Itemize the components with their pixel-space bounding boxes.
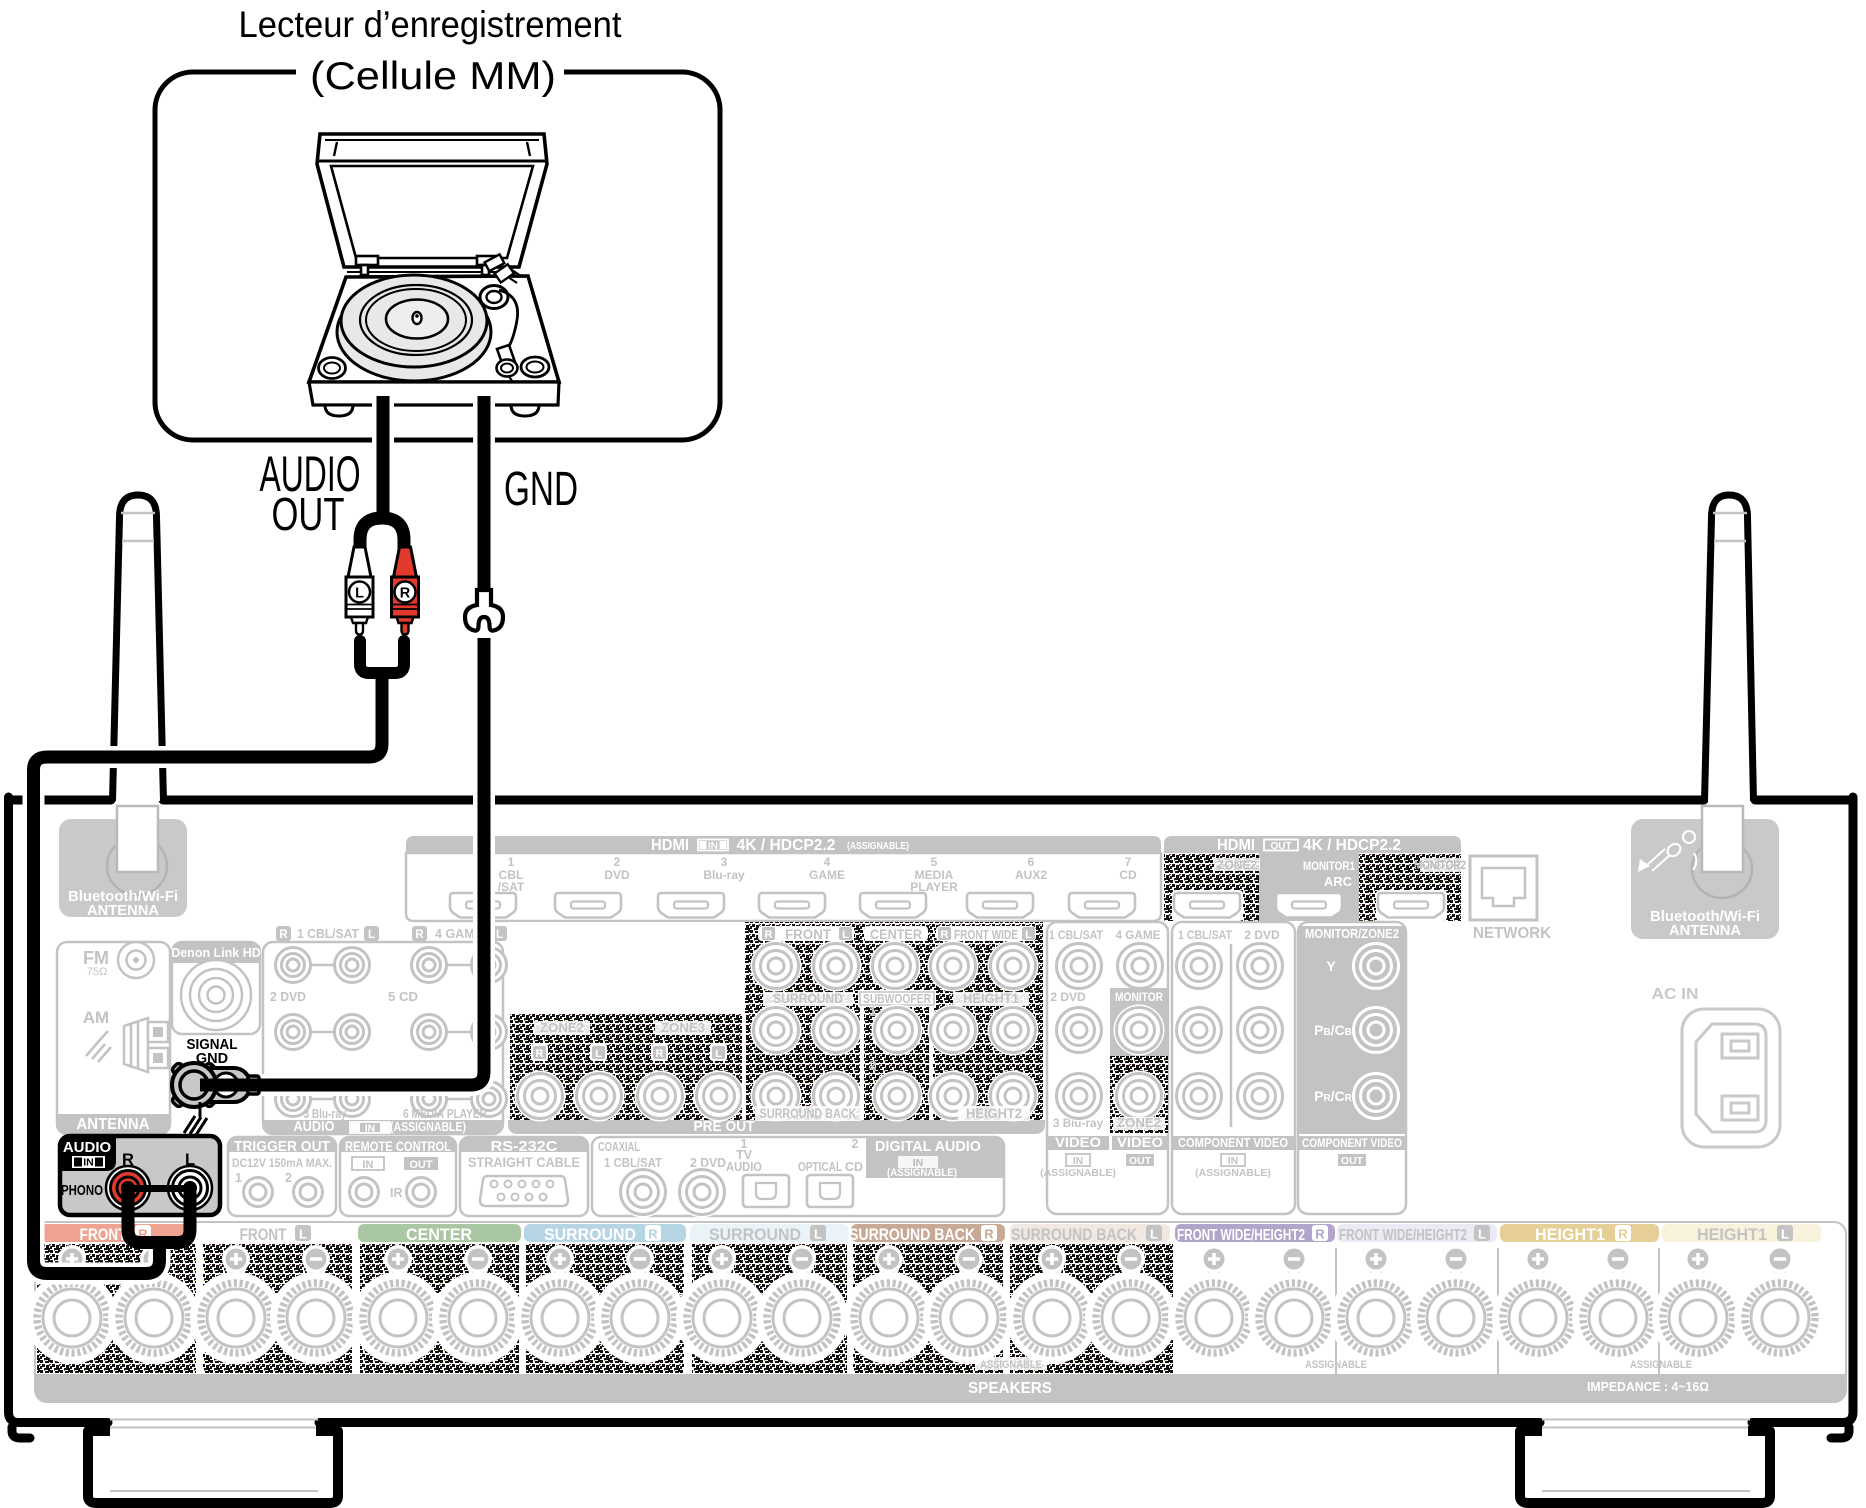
svg-text:FRONT: FRONT <box>785 927 832 942</box>
svg-text:Y: Y <box>1326 958 1336 974</box>
svg-text:IN: IN <box>365 1123 376 1135</box>
svg-text:4: 4 <box>824 855 831 869</box>
svg-text:L: L <box>595 1048 602 1060</box>
svg-text:OPTICAL: OPTICAL <box>798 1160 842 1174</box>
svg-text:VIDEO: VIDEO <box>1117 1134 1163 1150</box>
svg-text:OUT: OUT <box>1341 1155 1364 1167</box>
svg-text:GND: GND <box>504 463 578 516</box>
svg-text:5: 5 <box>931 855 938 869</box>
svg-text:6: 6 <box>1028 855 1035 869</box>
svg-text:HEIGHT2: HEIGHT2 <box>966 1106 1022 1121</box>
svg-text:ASSIGNABLE: ASSIGNABLE <box>980 1359 1042 1371</box>
svg-text:SURROUND: SURROUND <box>709 1225 801 1244</box>
svg-text:REMOTE CONTROL: REMOTE CONTROL <box>345 1139 451 1154</box>
svg-text:OUT: OUT <box>1129 1155 1152 1167</box>
svg-text:ZONE2: ZONE2 <box>1117 1115 1161 1130</box>
svg-text:DIGITAL AUDIO: DIGITAL AUDIO <box>875 1138 981 1155</box>
svg-text:2: 2 <box>869 1058 877 1073</box>
svg-text:R: R <box>279 929 288 941</box>
svg-text:COAXIAL: COAXIAL <box>598 1140 640 1154</box>
svg-text:(ASSIGNABLE): (ASSIGNABLE) <box>887 1167 957 1179</box>
svg-text:2: 2 <box>852 1137 859 1151</box>
svg-text:L: L <box>496 929 503 941</box>
svg-text:SPEAKERS: SPEAKERS <box>968 1380 1052 1397</box>
svg-text:DC12V 150mA MAX.: DC12V 150mA MAX. <box>232 1156 332 1170</box>
svg-text:AUDIO: AUDIO <box>726 1160 762 1174</box>
svg-text:(ASSIGNABLE): (ASSIGNABLE) <box>390 1119 466 1134</box>
svg-text:CD: CD <box>845 1160 863 1174</box>
svg-text:IMPEDANCE : 4~16Ω: IMPEDANCE : 4~16Ω <box>1587 1379 1709 1394</box>
svg-text:SURROUND BACK: SURROUND BACK <box>1011 1225 1138 1244</box>
svg-text:2: 2 <box>285 1171 292 1185</box>
svg-text:L: L <box>299 1227 307 1242</box>
svg-text:L: L <box>1781 1227 1789 1242</box>
svg-text:IN: IN <box>1073 1155 1084 1167</box>
svg-text:(ASSIGNABLE): (ASSIGNABLE) <box>1195 1167 1271 1179</box>
svg-text:7: 7 <box>1125 855 1132 869</box>
svg-text:R: R <box>656 1048 664 1060</box>
svg-text:L: L <box>842 929 849 941</box>
svg-text:IR: IR <box>390 1186 403 1200</box>
svg-text:R: R <box>941 929 949 941</box>
svg-text:IN: IN <box>363 1159 374 1171</box>
svg-text:75Ω: 75Ω <box>87 966 107 978</box>
svg-text:1: 1 <box>235 1171 242 1185</box>
svg-text:MONITOR/ZONE2: MONITOR/ZONE2 <box>1305 927 1399 941</box>
svg-text:IN: IN <box>708 841 718 852</box>
svg-text:MONITOR: MONITOR <box>1115 992 1164 1004</box>
svg-text:2 DVD: 2 DVD <box>1244 928 1280 942</box>
svg-text:SURROUND BACK: SURROUND BACK <box>849 1225 976 1244</box>
svg-text:4 GAME: 4 GAME <box>1116 928 1161 942</box>
svg-text:2 DVD: 2 DVD <box>270 990 306 1004</box>
svg-text:1: 1 <box>508 855 515 869</box>
svg-text:FRONT WIDE: FRONT WIDE <box>954 927 1018 942</box>
svg-text:CD: CD <box>1119 868 1137 882</box>
svg-text:1 CBL/SAT: 1 CBL/SAT <box>1049 928 1104 942</box>
svg-text:FRONT: FRONT <box>240 1225 287 1244</box>
svg-text:FRONT WIDE/HEIGHT2: FRONT WIDE/HEIGHT2 <box>1339 1227 1467 1244</box>
svg-text:R: R <box>1618 1227 1628 1242</box>
svg-text:ZONE3: ZONE3 <box>661 1020 705 1035</box>
svg-text:TRIGGER OUT: TRIGGER OUT <box>234 1139 330 1155</box>
svg-text:R: R <box>984 1227 994 1242</box>
svg-text:R: R <box>765 929 773 941</box>
svg-text:HEIGHT1: HEIGHT1 <box>963 991 1019 1006</box>
svg-text:1 CBL/SAT: 1 CBL/SAT <box>604 1156 662 1170</box>
svg-text:2: 2 <box>614 855 621 869</box>
svg-text:STRAIGHT CABLE: STRAIGHT CABLE <box>468 1155 580 1170</box>
svg-text:NETWORK: NETWORK <box>1473 925 1552 942</box>
svg-text:Denon Link HD: Denon Link HD <box>171 946 261 960</box>
svg-text:L: L <box>368 929 375 941</box>
svg-text:ANTENNA: ANTENNA <box>1669 923 1742 939</box>
svg-text:L: L <box>1025 929 1032 941</box>
svg-text:HDMI: HDMI <box>1217 837 1255 854</box>
svg-text:COMPONENT VIDEO: COMPONENT VIDEO <box>1178 1136 1288 1150</box>
svg-text:IN: IN <box>1228 1155 1239 1167</box>
svg-text:R: R <box>648 1227 658 1242</box>
svg-text:2 DVD: 2 DVD <box>1050 990 1086 1004</box>
svg-text:ZONE2: ZONE2 <box>540 1020 584 1035</box>
svg-text:HEIGHT1: HEIGHT1 <box>1697 1225 1767 1244</box>
svg-text:ARC: ARC <box>1324 874 1353 889</box>
svg-text:AUDIO: AUDIO <box>63 1139 112 1156</box>
svg-text:RS-232C: RS-232C <box>491 1138 558 1155</box>
svg-text:Blu-ray: Blu-ray <box>703 868 745 882</box>
svg-text:OUT: OUT <box>409 1159 433 1171</box>
svg-text:L: L <box>1478 1227 1486 1242</box>
svg-text:1 CBL/SAT: 1 CBL/SAT <box>297 927 359 941</box>
svg-text:ANTENNA: ANTENNA <box>87 903 160 919</box>
svg-text:4K / HDCP2.2: 4K / HDCP2.2 <box>737 837 836 854</box>
svg-text:HDMI: HDMI <box>651 837 689 854</box>
svg-text:SURROUND BACK: SURROUND BACK <box>760 1106 857 1121</box>
svg-text:COMPONENT VIDEO: COMPONENT VIDEO <box>1302 1136 1402 1150</box>
svg-text:ANTENNA: ANTENNA <box>77 1116 150 1133</box>
svg-text:DVD: DVD <box>604 868 630 882</box>
svg-text:FRONT WIDE/HEIGHT2: FRONT WIDE/HEIGHT2 <box>1177 1227 1305 1244</box>
svg-text:MONITOR2: MONITOR2 <box>1414 860 1466 872</box>
svg-text:(ASSIGNABLE): (ASSIGNABLE) <box>1040 1167 1116 1179</box>
svg-text:IN: IN <box>83 1157 94 1169</box>
svg-text:OUT: OUT <box>1270 841 1291 852</box>
svg-text:AM: AM <box>83 1008 109 1027</box>
svg-text:5 CD: 5 CD <box>388 990 418 1004</box>
svg-text:Lecteur d’enregistrement: Lecteur d’enregistrement <box>239 4 623 45</box>
svg-text:R: R <box>1315 1227 1325 1242</box>
svg-text:(ASSIGNABLE): (ASSIGNABLE) <box>847 840 909 852</box>
svg-text:R: R <box>536 1048 544 1060</box>
svg-text:ZONE2: ZONE2 <box>1217 858 1257 872</box>
svg-text:AUDIO: AUDIO <box>294 1118 335 1135</box>
svg-text:MONITOR1: MONITOR1 <box>1303 861 1356 873</box>
svg-text:1 CBL/SAT: 1 CBL/SAT <box>1178 928 1233 942</box>
svg-text:L: L <box>715 1048 722 1060</box>
svg-text:AUX2: AUX2 <box>1015 868 1047 882</box>
svg-text:CENTER: CENTER <box>870 927 922 942</box>
svg-text:R: R <box>415 929 424 941</box>
svg-text:AC IN: AC IN <box>1652 986 1699 1003</box>
svg-text:FRONT: FRONT <box>80 1225 127 1244</box>
svg-text:L: L <box>1150 1227 1158 1242</box>
svg-text:SURROUND: SURROUND <box>773 991 843 1006</box>
svg-text:CENTER: CENTER <box>406 1225 472 1244</box>
svg-text:OUT: OUT <box>272 488 345 540</box>
svg-text:R: R <box>400 586 411 602</box>
svg-text:3: 3 <box>721 855 728 869</box>
svg-text:L: L <box>355 586 364 602</box>
svg-text:FM: FM <box>83 948 109 968</box>
svg-text:GAME: GAME <box>809 868 845 882</box>
svg-text:ASSIGNABLE: ASSIGNABLE <box>1305 1359 1367 1371</box>
svg-text:PHONO: PHONO <box>61 1182 103 1199</box>
svg-text:SURROUND: SURROUND <box>544 1225 636 1244</box>
svg-text:HEIGHT1: HEIGHT1 <box>1535 1225 1605 1244</box>
svg-text:ASSIGNABLE: ASSIGNABLE <box>1630 1359 1692 1371</box>
svg-text:(Cellule MM): (Cellule MM) <box>310 55 556 98</box>
svg-text:VIDEO: VIDEO <box>1055 1134 1101 1150</box>
svg-text:L: L <box>814 1227 822 1242</box>
svg-text:4K / HDCP2.2: 4K / HDCP2.2 <box>1303 837 1401 854</box>
